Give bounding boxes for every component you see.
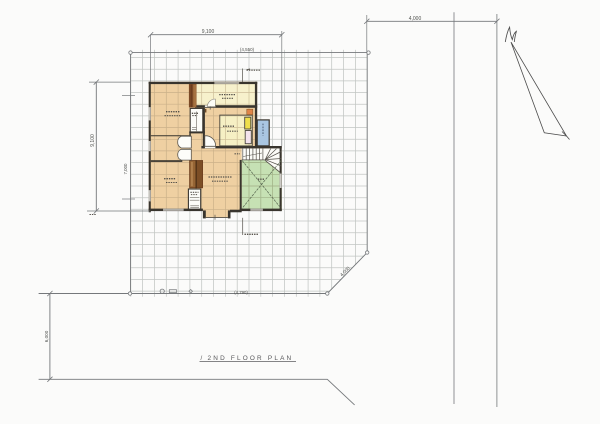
svg-text:9,100: 9,100 — [90, 134, 96, 147]
svg-text:4,000: 4,000 — [409, 16, 422, 22]
svg-text:/: / — [201, 355, 203, 362]
svg-text:9,100: 9,100 — [202, 29, 215, 35]
svg-text:2ND FLOOR PLAN: 2ND FLOOR PLAN — [208, 355, 294, 362]
svg-text:7,000: 7,000 — [123, 163, 128, 175]
svg-text:(4,550): (4,550) — [240, 47, 255, 52]
svg-text:6,000: 6,000 — [44, 330, 49, 342]
svg-text:(4,790): (4,790) — [234, 290, 248, 295]
